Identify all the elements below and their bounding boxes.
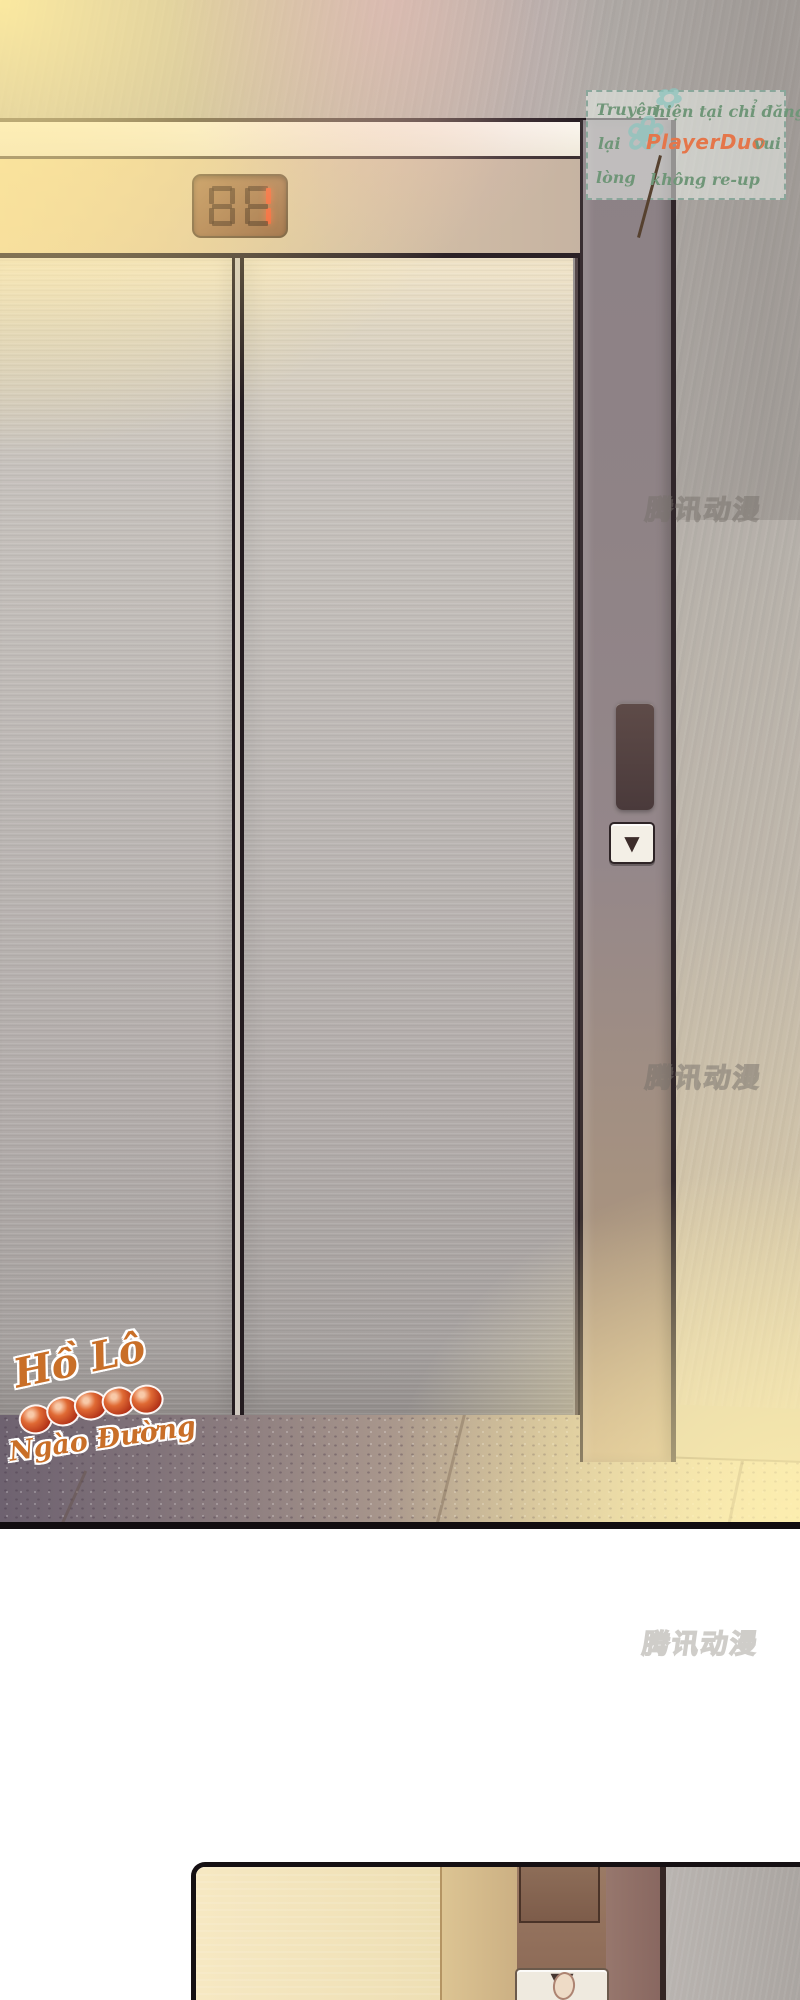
comic-page: ▼ ❀ ✿ Truyện hiện tại chỉ đăng lại Playe…: [0, 0, 800, 2000]
tencent-watermark: 腾讯动漫: [640, 1622, 761, 1661]
elevator-door-right: [244, 258, 575, 1415]
credit-text: vui: [754, 134, 781, 153]
elevator-door-gap: [231, 258, 246, 1415]
call-down-button: ▼: [609, 822, 655, 864]
panel1-bottom-border: [0, 1522, 800, 1529]
credit-text: không re-up: [650, 170, 760, 189]
credit-text: hiện tại chỉ đăng: [654, 102, 800, 121]
display-digit-left: [209, 186, 235, 226]
berry-icon: [129, 1383, 165, 1415]
credit-brand: PlayerDuo: [646, 130, 766, 154]
tencent-watermark: 腾讯动漫: [643, 488, 764, 527]
call-panel-plate: [616, 702, 654, 810]
panel-button-closeup: ▼: [191, 1862, 800, 2000]
wall-cream-section: [196, 1867, 440, 2000]
elevator-header-panel: [0, 159, 582, 258]
wall-grey-section: [666, 1867, 800, 2000]
pillar-closeup: [606, 1867, 662, 2000]
panel-elevator-scene: ▼ ❀ ✿ Truyện hiện tại chỉ đăng lại Playe…: [0, 0, 800, 1529]
elevator-header-trim: [0, 122, 582, 159]
panel2-content: ▼: [196, 1867, 800, 2000]
credit-text: Truyện: [596, 100, 658, 119]
credit-text: lòng: [596, 168, 636, 187]
display-digit-right: [245, 186, 271, 226]
translator-logo: Hồ Lô Ngào Đường: [0, 1317, 257, 1494]
call-button-plate-closeup: ▼: [515, 1968, 609, 2000]
logo-text-top: Hồ Lô: [9, 1324, 149, 1398]
credit-text: lại: [598, 134, 621, 153]
tencent-watermark: 腾讯动漫: [643, 1056, 764, 1095]
elevator-door-left: [0, 258, 233, 1415]
doorframe-recess: [519, 1867, 600, 1923]
down-arrow-icon: ▼: [624, 833, 639, 853]
wall-tan-section: [440, 1867, 517, 2000]
wall-base-right: [660, 1404, 800, 1463]
floor-indicator-display: [192, 174, 288, 238]
credit-box: ❀ ✿ Truyện hiện tại chỉ đăng lại PlayerD…: [586, 90, 786, 200]
